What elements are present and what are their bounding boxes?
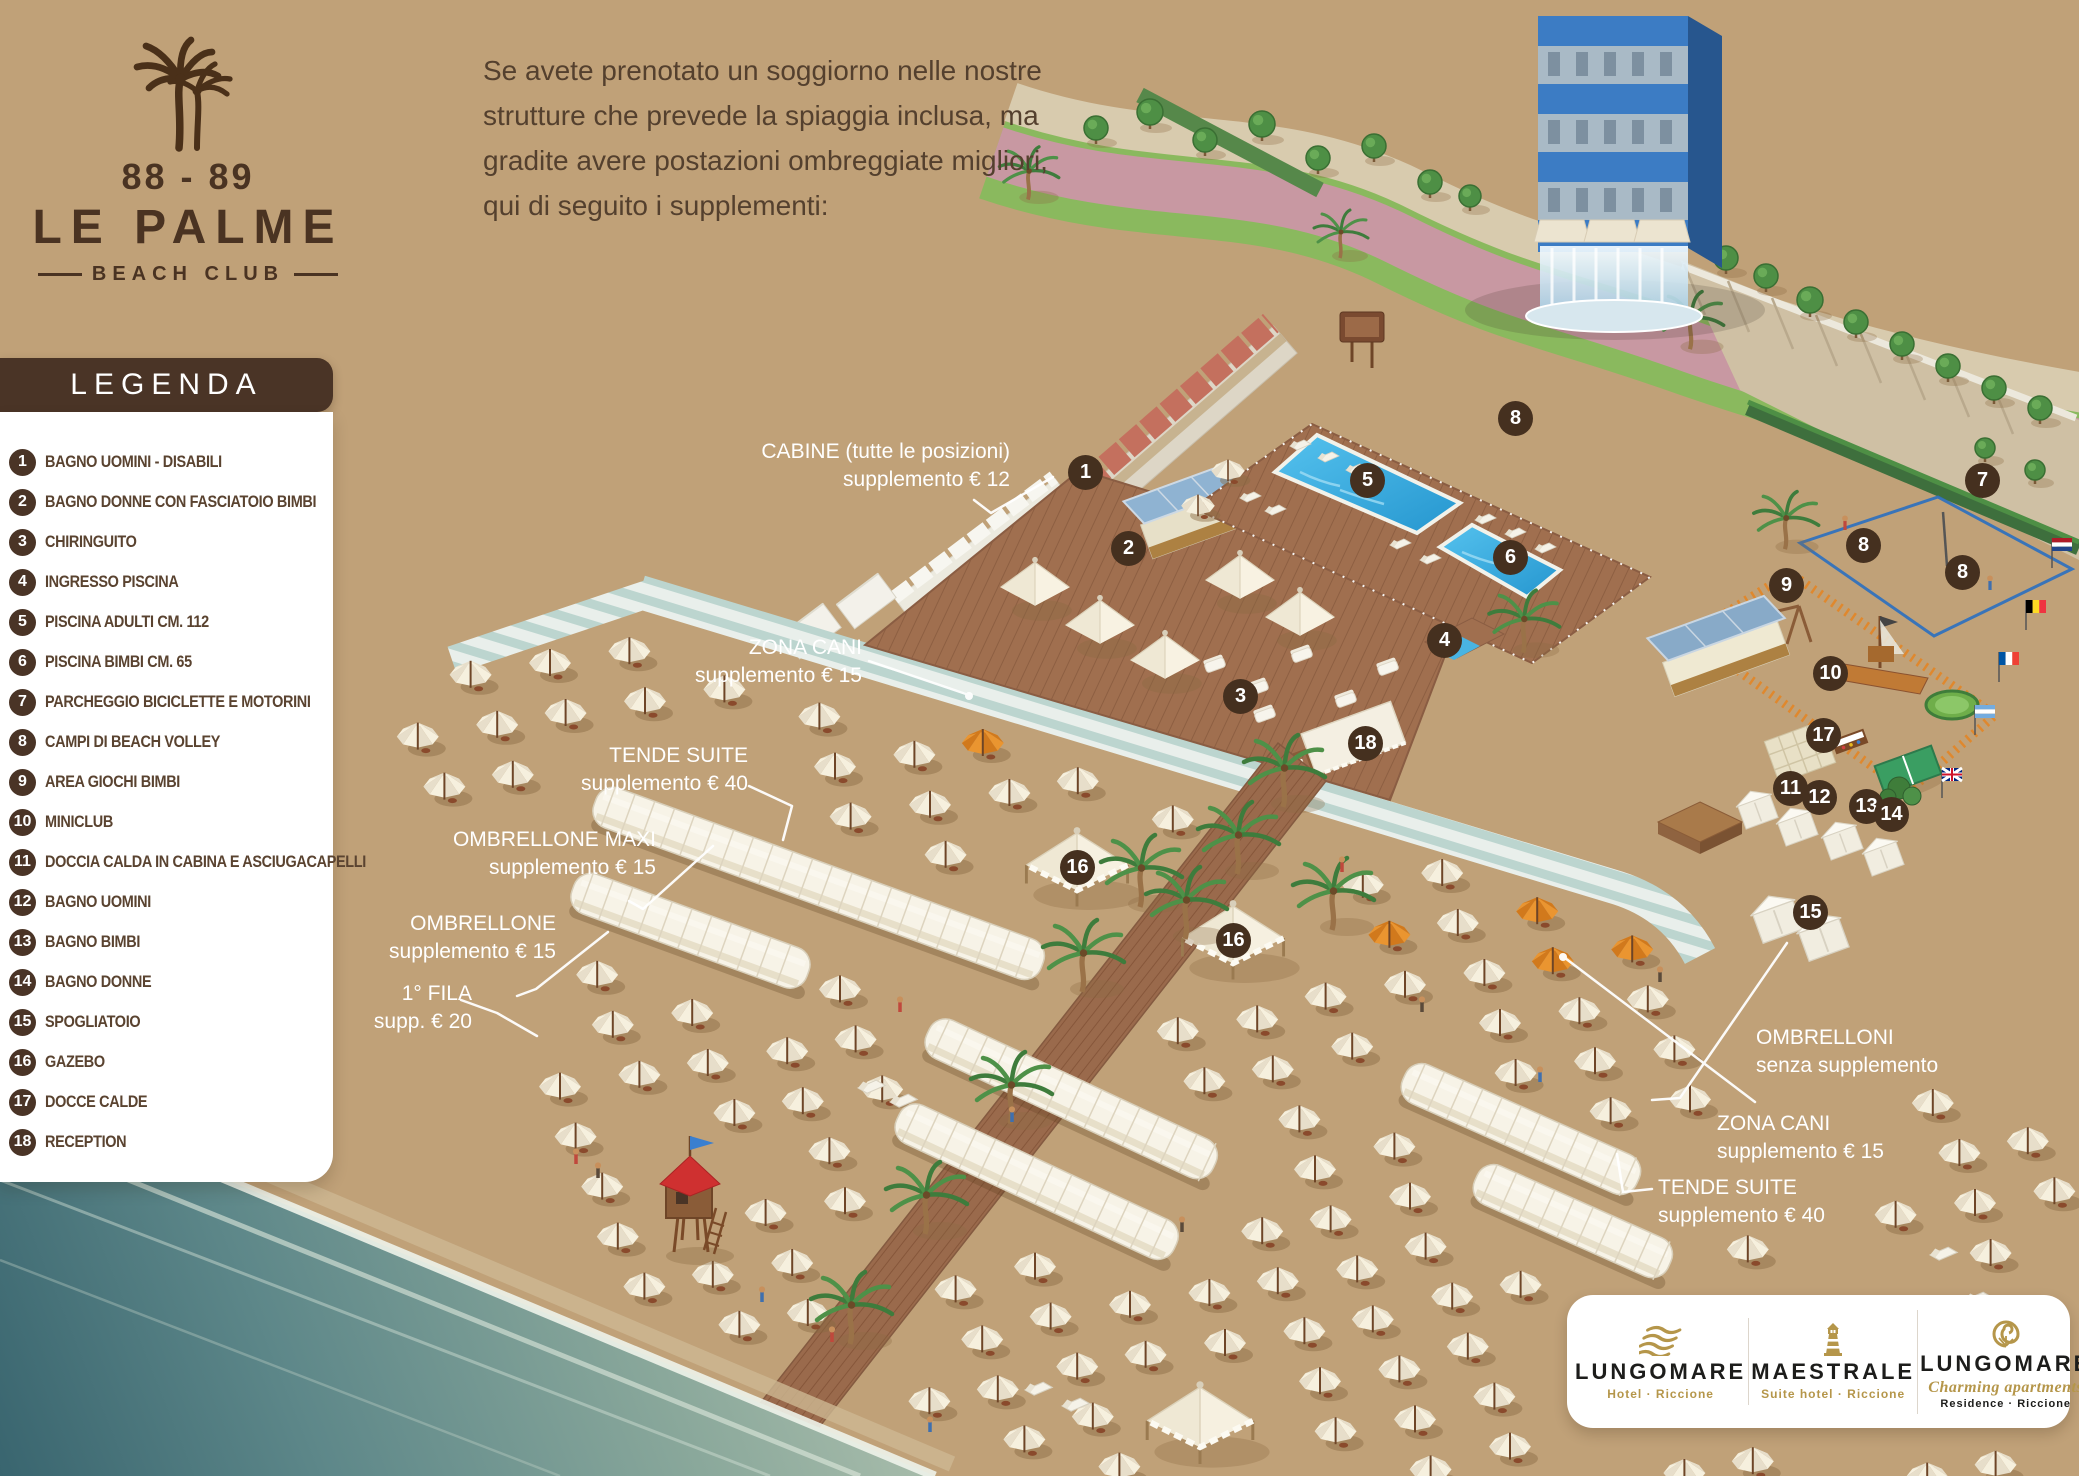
- legend-item-number: 6: [9, 649, 36, 676]
- legend-item: 13BAGNO BIMBI: [9, 922, 325, 962]
- intro-text: Se avete prenotato un soggiorno nelle no…: [483, 48, 1243, 228]
- legend-item: 1BAGNO UOMINI - DISABILI: [9, 442, 325, 482]
- legend-item: 18RECEPTION: [9, 1122, 325, 1162]
- legend-item-number: 8: [9, 729, 36, 756]
- dash-left: [38, 273, 82, 276]
- hotel-logos-panel: LUNGOMARE Hotel · Riccione MAESTRALE Sui…: [1567, 1295, 2070, 1428]
- legend-item: 17DOCCE CALDE: [9, 1082, 325, 1122]
- map-marker-2: 2: [1111, 531, 1146, 566]
- legend-item-label: BAGNO UOMINI: [45, 892, 151, 912]
- legend-item: 4INGRESSO PISCINA: [9, 562, 325, 602]
- map-marker-10: 10: [1813, 656, 1848, 691]
- legend-item-number: 10: [9, 809, 36, 836]
- legend-item: 3CHIRINGUITO: [9, 522, 325, 562]
- waves-icon: [1575, 1322, 1746, 1356]
- label-ombrellone: OMBRELLONEsupplemento € 15: [389, 910, 556, 966]
- logo-subtitle-row: BEACH CLUB: [28, 263, 348, 286]
- map-marker-12: 12: [1802, 780, 1837, 815]
- legend-item-label: BAGNO DONNE: [45, 972, 151, 992]
- palm-trees-icon: [113, 28, 263, 154]
- legend-item: 10MINICLUB: [9, 802, 325, 842]
- map-marker-3: 3: [1223, 679, 1258, 714]
- label-prima-fila: 1° FILAsupp. € 20: [374, 980, 472, 1036]
- legend-header: LEGENDA: [0, 358, 333, 412]
- legend-item-number: 14: [9, 969, 36, 996]
- legend-item: 6PISCINA BIMBI CM. 65: [9, 642, 325, 682]
- legend-item: 11DOCCIA CALDA IN CABINA E ASCIUGACAPELL…: [9, 842, 325, 882]
- legend-item-number: 17: [9, 1089, 36, 1116]
- legend-item-number: 5: [9, 609, 36, 636]
- legend-item: 9AREA GIOCHI BIMBI: [9, 762, 325, 802]
- logo-name: LE PALME: [28, 200, 348, 255]
- legend-item-number: 3: [9, 529, 36, 556]
- lighthouse-icon: [1751, 1322, 1915, 1356]
- legend-item-label: CHIRINGUITO: [45, 532, 137, 552]
- trampoline: [1926, 691, 1978, 719]
- logo-numbers: 88 - 89: [28, 156, 348, 198]
- legend-item: 7PARCHEGGIO BICICLETTE E MOTORINI: [9, 682, 325, 722]
- label-cabine: CABINE (tutte le posizioni)supplemento €…: [761, 438, 1010, 494]
- legend-item-label: MINICLUB: [45, 812, 113, 832]
- label-zona-cani-right: ZONA CANIsupplemento € 15: [1717, 1110, 1884, 1166]
- logo-subtitle: BEACH CLUB: [92, 263, 284, 286]
- label-zona-cani-left: ZONA CANIsupplemento € 15: [695, 634, 862, 690]
- legend-item: 2BAGNO DONNE CON FASCIATOIO BIMBI: [9, 482, 325, 522]
- map-marker-15: 15: [1793, 895, 1828, 930]
- legend-item: 8CAMPI DI BEACH VOLLEY: [9, 722, 325, 762]
- legend-item-number: 11: [9, 849, 36, 876]
- map-marker-6: 6: [1493, 540, 1528, 575]
- legend-item-number: 7: [9, 689, 36, 716]
- label-tende-suite-left: TENDE SUITEsupplemento € 40: [581, 742, 748, 798]
- legend-item-number: 16: [9, 1049, 36, 1076]
- map-marker-5: 5: [1350, 463, 1385, 498]
- legend-item-label: PISCINA ADULTI CM. 112: [45, 612, 209, 632]
- legend-item-label: PARCHEGGIO BICICLETTE E MOTORINI: [45, 692, 311, 712]
- legend-item-label: BAGNO BIMBI: [45, 932, 140, 952]
- map-marker-4: 4: [1427, 623, 1462, 658]
- legend-item-number: 4: [9, 569, 36, 596]
- logo-lungomare-hotel: LUNGOMARE Hotel · Riccione: [1573, 1318, 1748, 1405]
- legend-item-label: BAGNO UOMINI - DISABILI: [45, 452, 222, 472]
- map-marker-7: 7: [1965, 463, 2000, 498]
- legend-item: 16GAZEBO: [9, 1042, 325, 1082]
- legend-item-label: DOCCIA CALDA IN CABINA E ASCIUGACAPELLI: [45, 852, 366, 872]
- map-marker-17: 17: [1806, 718, 1841, 753]
- dash-right: [294, 273, 338, 276]
- legend-item-label: DOCCE CALDE: [45, 1092, 147, 1112]
- logo-maestrale: MAESTRALE Suite hotel · Riccione: [1748, 1318, 1917, 1405]
- legend-item-number: 9: [9, 769, 36, 796]
- legend-panel: 1BAGNO UOMINI - DISABILI 2BAGNO DONNE CO…: [0, 412, 333, 1182]
- map-marker-1: 1: [1068, 455, 1103, 490]
- label-ombrellone-maxi: OMBRELLONE MAXIsupplemento € 15: [453, 826, 656, 882]
- shell-icon: [1920, 1314, 2079, 1348]
- legend-item-number: 15: [9, 1009, 36, 1036]
- legend-item-label: PISCINA BIMBI CM. 65: [45, 652, 192, 672]
- legend-item-number: 13: [9, 929, 36, 956]
- map-marker-16a: 16: [1060, 850, 1095, 885]
- label-tende-suite-right: TENDE SUITEsupplemento € 40: [1658, 1174, 1825, 1230]
- map-marker-18: 18: [1348, 726, 1383, 761]
- beach-club-map-page: 88 - 89 LE PALME BEACH CLUB Se avete pre…: [0, 0, 2079, 1476]
- label-ombrelloni: OMBRELLONIsenza supplemento: [1756, 1024, 1938, 1080]
- map-marker-8b: 8: [1846, 528, 1881, 563]
- legend-item-number: 1: [9, 449, 36, 476]
- legend-item-label: RECEPTION: [45, 1132, 126, 1152]
- legend-item: 15SPOGLIATOIO: [9, 1002, 325, 1042]
- legend-item-label: BAGNO DONNE CON FASCIATOIO BIMBI: [45, 492, 316, 512]
- legend-item-number: 2: [9, 489, 36, 516]
- map-marker-16b: 16: [1216, 923, 1251, 958]
- legend-item-label: AREA GIOCHI BIMBI: [45, 772, 180, 792]
- legend-item-number: 18: [9, 1129, 36, 1156]
- logo-lungomare-residence: LUNGOMARE Charming apartments Residence …: [1917, 1310, 2079, 1414]
- legend-item-number: 12: [9, 889, 36, 916]
- beach-club-logo: 88 - 89 LE PALME BEACH CLUB: [28, 28, 348, 286]
- map-marker-14: 14: [1874, 797, 1909, 832]
- legend-item-label: CAMPI DI BEACH VOLLEY: [45, 732, 220, 752]
- map-marker-8c: 8: [1945, 555, 1980, 590]
- legend-item-label: SPOGLIATOIO: [45, 1012, 140, 1032]
- legend-item: 12BAGNO UOMINI: [9, 882, 325, 922]
- legend-item: 5PISCINA ADULTI CM. 112: [9, 602, 325, 642]
- legend-item-label: INGRESSO PISCINA: [45, 572, 178, 592]
- legend-item: 14BAGNO DONNE: [9, 962, 325, 1002]
- legend-item-label: GAZEBO: [45, 1052, 105, 1072]
- map-marker-8a: 8: [1498, 401, 1533, 436]
- map-marker-9: 9: [1769, 568, 1804, 603]
